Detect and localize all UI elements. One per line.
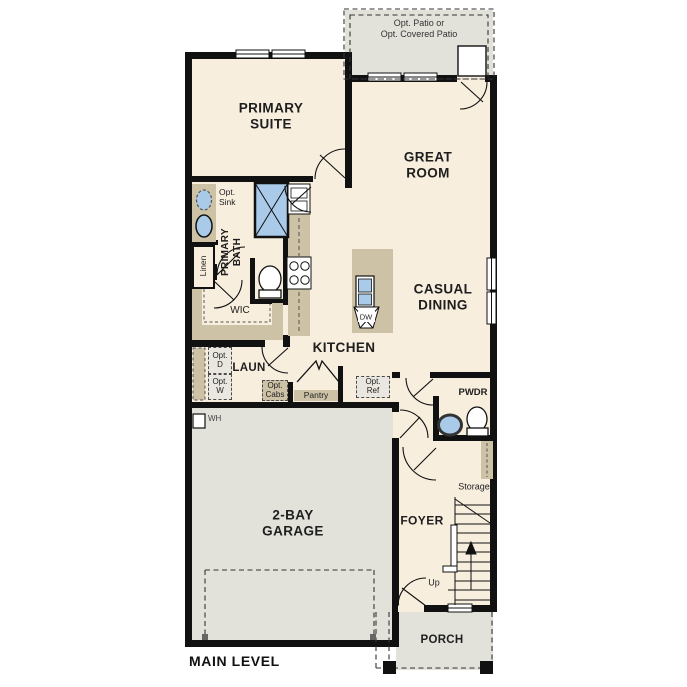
optional-sink-icon — [197, 190, 212, 210]
primary-bath-label: PRIMARY BATH — [220, 228, 244, 276]
plan-title: MAIN LEVEL — [189, 653, 280, 669]
opt-washer-box: Opt. W — [208, 374, 232, 400]
wic-label: WIC — [230, 305, 249, 317]
laundry-label: LAUN — [232, 361, 265, 375]
opt-dryer-box: Opt. D — [208, 347, 232, 374]
water-heater-icon — [193, 414, 205, 428]
casual-dining-label: CASUAL DINING — [414, 282, 473, 315]
pantry-label: Pantry — [304, 390, 329, 400]
powder-label: PWDR — [458, 387, 487, 399]
opt-sink-label: Opt. Sink — [219, 187, 236, 208]
powder-sink-icon — [439, 415, 462, 435]
linen-label: Linen — [198, 256, 208, 277]
dishwasher-label: DW — [360, 312, 373, 321]
stair-handrail — [451, 525, 457, 571]
primary-suite-label: PRIMARY SUITE — [239, 101, 304, 134]
garage-label: 2-BAY GARAGE — [262, 508, 324, 541]
storage-label: Storage — [458, 482, 490, 493]
foyer-label: FOYER — [400, 514, 443, 529]
laundry-cabinet — [193, 348, 205, 400]
opt-cabs-box: Opt. Cabs — [262, 380, 288, 401]
wic-shelf-bottom — [202, 325, 283, 340]
patio-label: Opt. Patio or Opt. Covered Patio — [381, 18, 458, 40]
porch-label: PORCH — [420, 633, 463, 647]
great-room-label: GREAT ROOM — [404, 150, 452, 183]
floor-plan: Opt. Patio or Opt. Covered Patio PRIMARY… — [0, 0, 687, 687]
opt-ref-box: Opt. Ref — [356, 376, 390, 398]
bath-toilet-icon — [259, 266, 281, 292]
kitchen-label: KITCHEN — [313, 340, 376, 356]
patio-door-leaf — [458, 46, 486, 76]
water-heater-label: WH — [208, 414, 221, 424]
up-label: Up — [428, 578, 440, 589]
wic-shelf-right — [272, 303, 283, 325]
bath-sink-icon — [196, 215, 212, 237]
cooktop-icon — [287, 257, 311, 289]
